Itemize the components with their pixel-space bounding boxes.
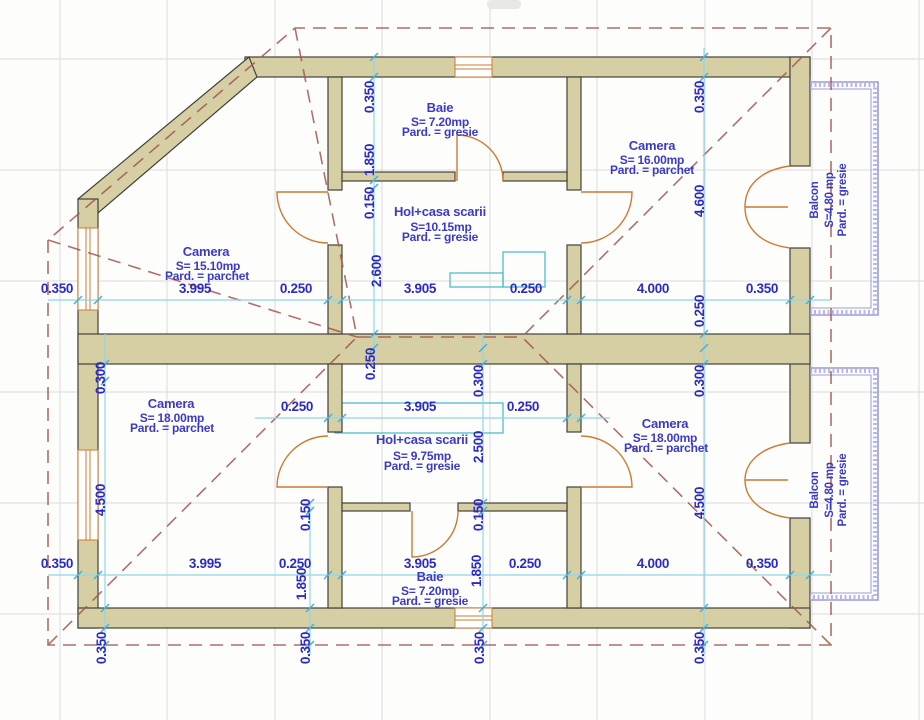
dim-label: 0.250 [507,399,539,414]
dim-label: 0.300 [692,365,707,397]
dim-label: 0.300 [471,365,486,397]
room-label-hol-top: Hol+casa scarii S=10.15mp Pard. = gresie [394,204,486,244]
dim-label: 0.350 [472,632,487,664]
floor-plan-drawing: 0.350 3.995 0.250 3.905 0.250 4.000 0.35… [0,0,924,720]
door-camera-left-lower [277,436,328,487]
wall-baie-divider-right [503,172,567,181]
dim-label: 1.850 [469,555,484,587]
wall-top [245,57,810,77]
door-balcony-lower [745,443,790,518]
wall-lower-left-b [328,487,342,608]
dim-label: 3.995 [189,556,222,571]
room-name: Balcon [809,181,821,218]
dim-label: 0.350 [298,632,313,664]
dim-label: 1.850 [362,144,377,176]
dim-label: 0.300 [93,362,108,394]
room-label-camera-bottom-left: Camera S= 18.00mp Pard. = parchet [130,396,214,435]
wall-baie-divider-left [342,172,455,181]
door-baie-top [457,135,503,181]
room-floor: Pard. = gresie [392,594,469,608]
dim-label: 0.150 [298,499,313,531]
wall-middle [78,334,810,364]
dim-label: 0.350 [746,556,778,571]
dim-label: 0.150 [362,187,377,219]
room-name: Camera [148,396,195,411]
walls [78,57,810,628]
room-label-camera-left: Camera S= 15.10mp Pard. = parchet [165,244,249,283]
door-camera-right-upper [581,192,632,243]
dim-label: 4.500 [692,487,707,519]
wall-upper-left-b [328,245,342,334]
door-camera-left-upper [277,192,328,243]
dim-label: 0.250 [510,281,542,296]
dim-label: 4.000 [637,556,669,571]
room-label-hol-bottom: Hol+casa scarii S= 9.75mp Pard. = gresie [376,432,468,473]
stair-outline-upper-run [450,273,503,287]
wall-upper-right-a [567,77,581,190]
dim-label: 0.350 [746,281,778,296]
top-scrollbar-artifact [487,0,521,9]
dim-label: 0.250 [281,399,313,414]
room-floor: Pard. = parchet [624,441,708,455]
dim-label: 0.250 [692,295,707,327]
wall-lower-baie-divider-left [342,503,410,511]
room-name: Hol+casa scarii [376,432,468,447]
dim-label: 3.905 [404,281,437,296]
dim-label: 0.350 [41,556,73,571]
dim-label: 0.350 [94,632,109,664]
window-baie-top [455,57,492,77]
wall-lower-left-a [328,364,342,432]
room-label-baie-top: Baie S= 7.20mp Pard. = gresie [402,100,479,139]
dim-label: 0.350 [362,81,377,113]
dim-label: 1.850 [294,568,309,600]
dim-label: 0.250 [280,281,312,296]
dim-label: 0.250 [363,348,378,380]
dim-label: 3.995 [179,281,212,296]
room-name: Hol+casa scarii [394,204,486,219]
room-name: Baie [427,100,454,115]
room-area: S=4.80 mp [824,172,836,228]
wall-upper-left-a [328,77,342,190]
dim-label: 0.250 [509,556,541,571]
dim-label: 2.500 [471,431,486,463]
floor-plan-canvas: 0.350 3.995 0.250 3.905 0.250 4.000 0.35… [0,0,924,720]
room-label-balcon-top: Balcon S=4.80 mp Pard. = gresie [809,164,849,237]
door-baie-bottom [412,511,458,557]
room-label-camera-top-right: Camera S= 16.00mp Pard. = parchet [610,138,694,177]
wall-lower-right-a [567,364,581,432]
dim-label: 0.350 [692,632,707,664]
room-floor: Pard. = parchet [610,163,694,177]
dim-label: 4.000 [637,281,669,296]
room-label-balcon-bottom: Balcon S=4.80 mp Pard. = gresie [809,454,849,527]
dim-label: 4.500 [93,484,108,516]
room-name: Camera [183,244,230,259]
room-label-camera-bottom-right: Camera S= 18.00mp Pard. = parchet [624,416,708,455]
room-floor: Pard. = gresie [402,125,479,139]
room-floor: Pard. = gresie [402,230,479,244]
room-floor: Pard. = gresie [384,459,461,473]
room-floor: Pard. = gresie [837,454,849,527]
dim-label: 0.350 [692,81,707,113]
dim-label: 3.905 [404,399,437,414]
wall-right-a [790,57,810,166]
door-balcony-upper [745,166,790,248]
wall-upper-right-b [567,245,581,334]
wall-lower-right-b [567,487,581,608]
dim-label: 2.600 [369,255,384,287]
room-name: Camera [629,138,676,153]
room-floor: Pard. = gresie [837,164,849,237]
dim-label: 0.350 [41,281,73,296]
room-name: Camera [642,416,689,431]
room-floor: Pard. = parchet [130,421,214,435]
room-name: Balcon [809,471,821,508]
dim-label: 4.600 [692,185,707,217]
room-floor: Pard. = parchet [165,269,249,283]
room-area: S=4.80 mp [824,462,836,518]
room-name: Baie [417,569,444,584]
dim-label: 0.150 [471,499,486,531]
